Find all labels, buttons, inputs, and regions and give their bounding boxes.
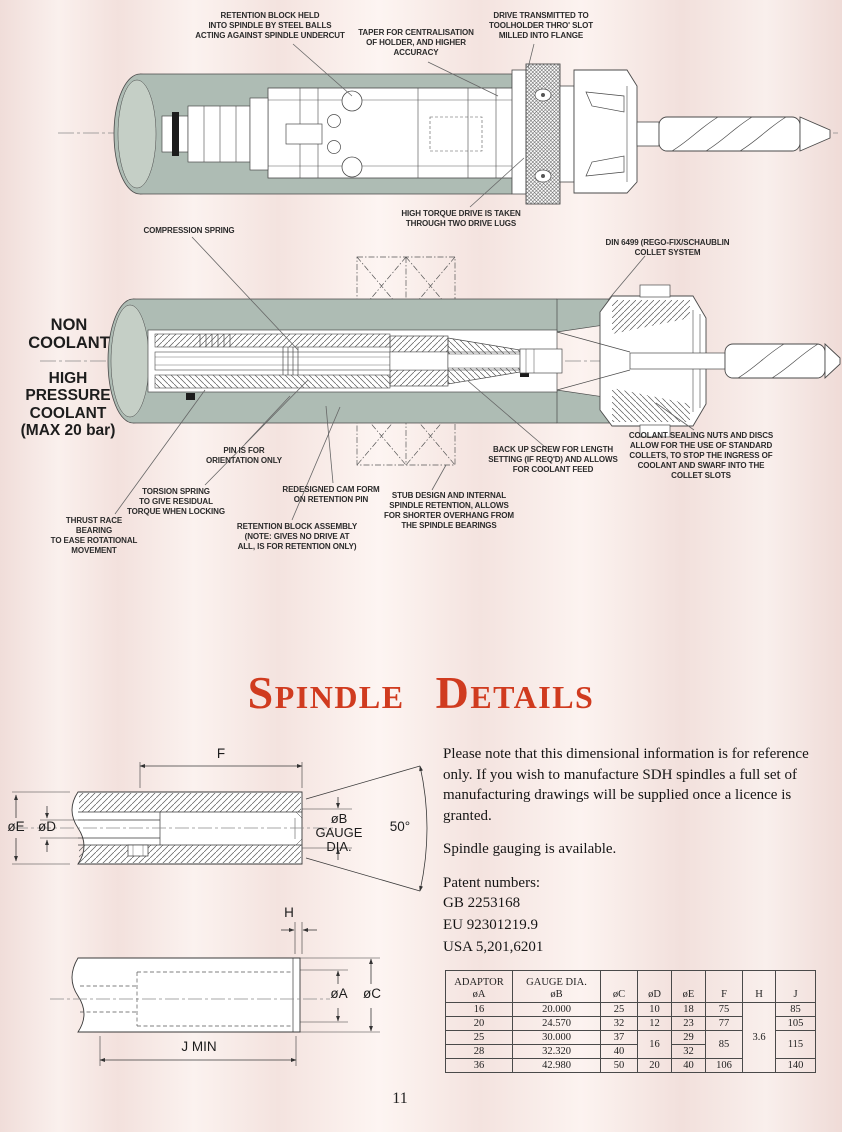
col-header-j: J xyxy=(776,971,816,1003)
annotation-high-torque: HIGH TORQUE DRIVE IS TAKEN THROUGH TWO D… xyxy=(374,209,548,229)
col-header-h: H xyxy=(743,971,776,1003)
page-number: 11 xyxy=(378,1090,422,1108)
col-header-adaptor: ADAPTOR øA xyxy=(446,971,513,1003)
table-cell-f-merged: 85 xyxy=(706,1031,743,1059)
table-cell: 40 xyxy=(601,1045,638,1059)
table-cell: 32.320 xyxy=(513,1045,601,1059)
table-cell: 42.980 xyxy=(513,1059,601,1073)
gauging-note: Spindle gauging is available. xyxy=(443,839,837,860)
col-header-adaptor-line1: ADAPTOR xyxy=(446,977,512,989)
col-header-gauge-line1: GAUGE DIA. xyxy=(513,977,600,989)
dim-label-oc: øC xyxy=(359,987,385,1002)
table-row: 16 20.000 25 10 18 75 3.6 85 xyxy=(446,1003,816,1017)
dim-label-j-min: J MIN xyxy=(160,1040,238,1055)
annotation-drive-transmitted: DRIVE TRANSMITTED TO TOOLHOLDER THRO' SL… xyxy=(465,11,617,41)
table-cell-d-merged: 16 xyxy=(638,1031,672,1059)
dim-label-angle: 50° xyxy=(382,820,418,835)
table-cell-h-merged: 3.6 xyxy=(743,1003,776,1073)
table-cell: 20.000 xyxy=(513,1003,601,1017)
dim-label-oe: øE xyxy=(4,820,28,835)
annotation-pin-orientation: PIN IS FOR ORIENTATION ONLY xyxy=(188,446,300,466)
col-header-gauge-line2: øB xyxy=(513,989,600,1001)
table-cell: 24.570 xyxy=(513,1017,601,1031)
dim-label-h: H xyxy=(281,906,297,921)
table-cell: 32 xyxy=(601,1017,638,1031)
patent-gb: GB 2253168 xyxy=(443,893,837,915)
table-cell: 16 xyxy=(446,1003,513,1017)
table-header-row: ADAPTOR øA GAUGE DIA. øB øC øD øE F H J xyxy=(446,971,816,1003)
label-high-pressure-coolant: HIGH PRESSURE COOLANT (MAX 20 bar) xyxy=(4,370,132,439)
col-header-gauge: GAUGE DIA. øB xyxy=(513,971,601,1003)
dim-label-ob-gauge: øB GAUGE DIA. xyxy=(310,812,368,854)
table-cell: 106 xyxy=(706,1059,743,1073)
table-cell-j-merged: 115 xyxy=(776,1031,816,1059)
patent-list: GB 2253168 EU 92301219.9 USA 5,201,6201 xyxy=(443,893,837,958)
table-cell: 23 xyxy=(672,1017,706,1031)
dim-label-od: øD xyxy=(34,820,60,835)
technical-drawings-layer xyxy=(0,0,842,1132)
annotation-retention-block: RETENTION BLOCK HELD INTO SPINDLE BY STE… xyxy=(172,11,368,41)
table-cell: 32 xyxy=(672,1045,706,1059)
table-cell: 85 xyxy=(776,1003,816,1017)
info-column: Please note that this dimensional inform… xyxy=(443,744,837,959)
top-cross-section-drawing xyxy=(58,44,838,207)
table-cell: 36 xyxy=(446,1059,513,1073)
table-cell: 18 xyxy=(672,1003,706,1017)
table-cell: 105 xyxy=(776,1017,816,1031)
col-header-od: øD xyxy=(638,971,672,1003)
table-cell: 28 xyxy=(446,1045,513,1059)
annotation-coolant-sealing: COOLANT SEALING NUTS AND DISCS ALLOW FOR… xyxy=(604,431,798,481)
col-header-oe: øE xyxy=(672,971,706,1003)
annotation-compression-spring: COMPRESSION SPRING xyxy=(134,226,244,236)
dimensions-table: ADAPTOR øA GAUGE DIA. øB øC øD øE F H J … xyxy=(445,970,816,1073)
col-header-f: F xyxy=(706,971,743,1003)
table-cell: 40 xyxy=(672,1059,706,1073)
table-cell: 25 xyxy=(446,1031,513,1045)
page-title: Spindle Details xyxy=(0,666,842,719)
table-cell: 50 xyxy=(601,1059,638,1073)
patent-eu: EU 92301219.9 xyxy=(443,915,837,937)
annotation-retention-assembly: RETENTION BLOCK ASSEMBLY (NOTE: GIVES NO… xyxy=(210,522,384,552)
table-cell: 20 xyxy=(638,1059,672,1073)
table-cell: 25 xyxy=(601,1003,638,1017)
patents-heading: Patent numbers: xyxy=(443,873,837,894)
col-header-oc: øC xyxy=(601,971,638,1003)
annotation-din-collet: DIN 6499 (REGO-FIX/SCHAUBLIN COLLET SYST… xyxy=(560,238,775,258)
col-header-adaptor-line2: øA xyxy=(446,989,512,1001)
table-cell: 140 xyxy=(776,1059,816,1073)
table-cell: 10 xyxy=(638,1003,672,1017)
table-cell: 75 xyxy=(706,1003,743,1017)
reference-paragraph: Please note that this dimensional inform… xyxy=(443,744,837,826)
label-non-coolant: NON COOLANT xyxy=(10,316,128,353)
table-cell: 20 xyxy=(446,1017,513,1031)
dim-label-f: F xyxy=(208,747,234,762)
patent-usa: USA 5,201,6201 xyxy=(443,937,837,959)
document-page: RETENTION BLOCK HELD INTO SPINDLE BY STE… xyxy=(0,0,842,1132)
annotation-thrust-race: THRUST RACE BEARING TO EASE ROTATIONAL M… xyxy=(32,516,156,556)
annotation-stub-design: STUB DESIGN AND INTERNAL SPINDLE RETENTI… xyxy=(367,491,531,531)
table-cell: 12 xyxy=(638,1017,672,1031)
table-cell: 29 xyxy=(672,1031,706,1045)
table-cell: 77 xyxy=(706,1017,743,1031)
table-cell: 37 xyxy=(601,1031,638,1045)
table-cell: 30.000 xyxy=(513,1031,601,1045)
annotation-torsion-spring: TORSION SPRING TO GIVE RESIDUAL TORQUE W… xyxy=(104,487,248,517)
dim-label-oa: øA xyxy=(326,987,352,1002)
